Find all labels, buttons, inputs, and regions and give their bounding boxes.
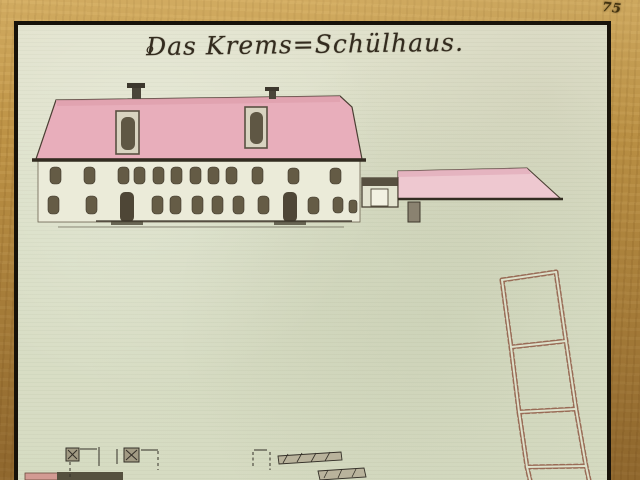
window <box>48 196 59 214</box>
window <box>212 196 223 214</box>
plan-lines <box>253 450 270 470</box>
dormer-window <box>121 117 135 150</box>
window <box>118 167 129 184</box>
door <box>283 192 297 222</box>
floorplan-fragment-right <box>253 450 366 480</box>
chimney-stem <box>269 90 276 99</box>
folio-number: 75 <box>601 0 623 17</box>
window <box>50 167 61 184</box>
window <box>349 200 357 213</box>
chimney-left <box>127 83 145 99</box>
dashed-ground-plan <box>502 272 589 480</box>
window <box>192 196 203 214</box>
dormer-right <box>245 107 267 148</box>
gateway-opening <box>371 189 388 206</box>
dormer-left <box>116 111 139 154</box>
window <box>288 168 299 184</box>
door <box>120 192 134 222</box>
hatched-wall <box>278 452 342 464</box>
page-title: Das Krems=Schülhaus. <box>130 28 480 62</box>
window <box>258 196 269 214</box>
window <box>233 196 244 214</box>
window <box>134 167 145 184</box>
plan-wall-cores <box>502 272 589 480</box>
window <box>330 168 341 184</box>
gateway-lintel <box>362 178 398 186</box>
window <box>153 167 164 184</box>
plan-core <box>502 272 556 280</box>
window <box>190 167 201 184</box>
scanned-manuscript-page: o Das Krems=Schülhaus. 75 <box>0 0 640 480</box>
window <box>333 197 343 213</box>
window <box>84 167 95 184</box>
main-building-elevation <box>32 83 366 227</box>
window <box>86 196 97 214</box>
chimney-cap <box>127 83 145 88</box>
window <box>308 197 319 214</box>
chimney-cap <box>265 87 279 91</box>
window <box>170 196 181 214</box>
floorplan-fragment-left <box>25 447 158 480</box>
architectural-drawing <box>0 0 640 480</box>
plan-dark-wall <box>57 472 123 480</box>
annex-wing <box>398 168 563 222</box>
gateway-connector <box>362 178 398 207</box>
window <box>171 167 182 184</box>
upper-window-row <box>50 167 341 184</box>
lower-window-row <box>48 196 357 214</box>
window <box>152 196 163 214</box>
chimney-stem <box>132 87 141 99</box>
window <box>226 167 237 184</box>
window <box>252 167 263 184</box>
plan-core <box>527 466 586 467</box>
window <box>208 167 219 184</box>
annex-post <box>408 202 420 222</box>
dormer-window <box>250 112 263 144</box>
